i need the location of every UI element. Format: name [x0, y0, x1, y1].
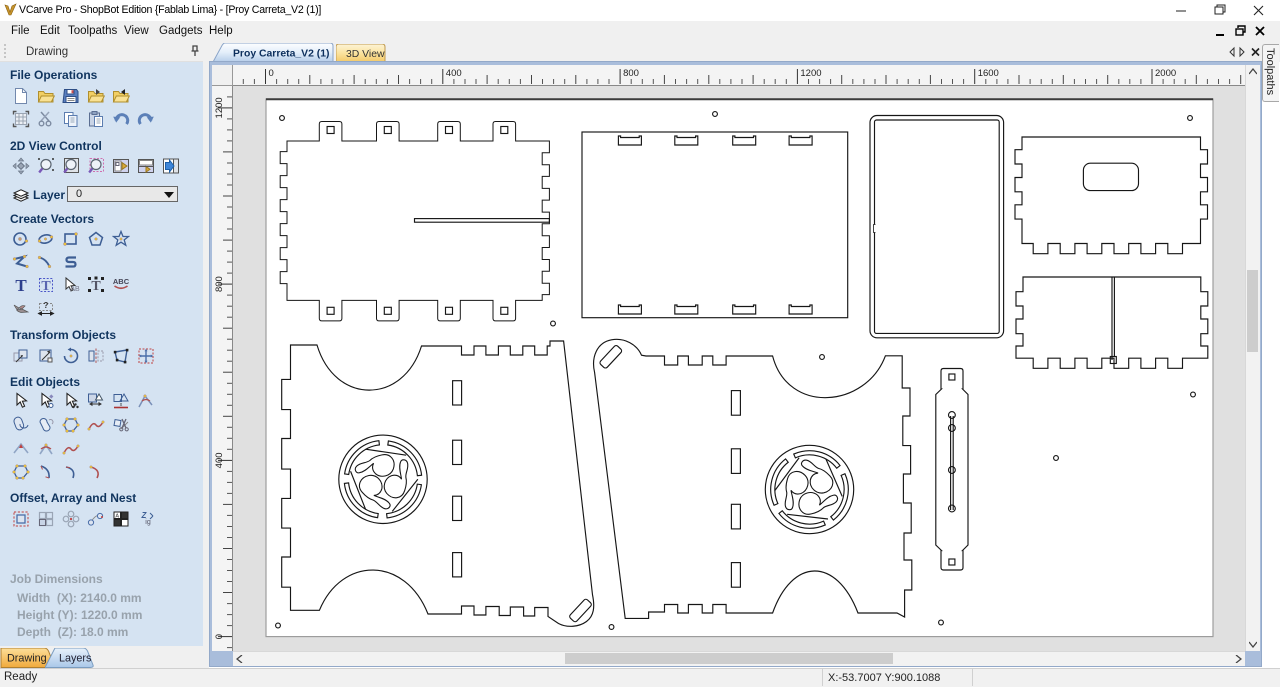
svg-text:T: T	[15, 276, 27, 294]
svg-text:400: 400	[214, 452, 225, 468]
svg-text:400: 400	[446, 68, 462, 79]
svg-text:T: T	[91, 279, 101, 294]
svg-text:T: T	[41, 279, 51, 294]
svg-text:Layers: Layers	[59, 653, 92, 665]
svg-text:1200: 1200	[800, 68, 821, 79]
svg-text:1600: 1600	[978, 68, 999, 79]
svg-text:800: 800	[214, 276, 225, 292]
svg-text:0: 0	[269, 68, 274, 79]
svg-text:3D View: 3D View	[346, 49, 385, 60]
svg-text:?: ?	[44, 301, 49, 310]
svg-text:B: B	[123, 521, 127, 527]
svg-text:A: A	[115, 513, 119, 519]
svg-text:ABC: ABC	[113, 277, 130, 286]
svg-text:Proy Carreta_V2 (1): Proy Carreta_V2 (1)	[233, 49, 329, 60]
svg-text:800: 800	[623, 68, 639, 79]
svg-text:Drawing: Drawing	[7, 653, 47, 665]
svg-text:AB: AB	[70, 286, 80, 293]
svg-text:1200: 1200	[214, 97, 225, 118]
svg-text:ig: ig	[145, 519, 151, 526]
svg-text:0: 0	[214, 634, 225, 639]
svg-text:2000: 2000	[1155, 68, 1176, 79]
